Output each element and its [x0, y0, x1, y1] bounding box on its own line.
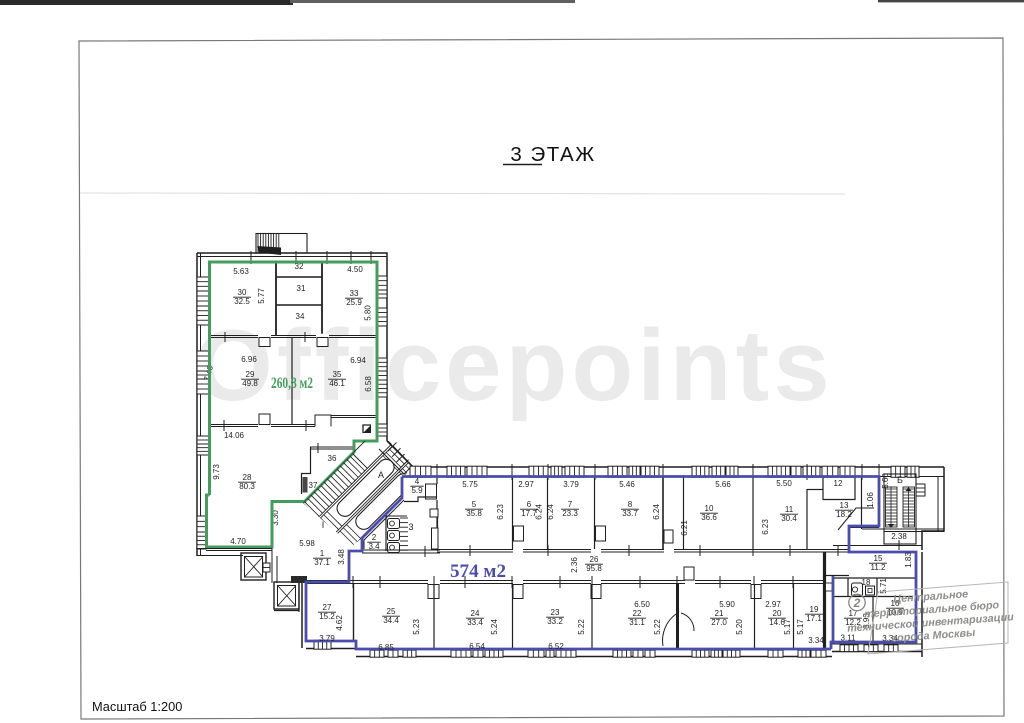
- svg-text:5: 5: [472, 500, 477, 509]
- svg-text:3.79: 3.79: [319, 634, 335, 643]
- svg-text:18: 18: [862, 578, 871, 587]
- svg-text:19: 19: [810, 605, 819, 614]
- svg-text:8: 8: [628, 500, 633, 509]
- svg-text:18.2: 18.2: [836, 510, 852, 519]
- svg-text:15: 15: [874, 554, 883, 563]
- svg-text:32.5: 32.5: [234, 297, 250, 306]
- svg-text:3.11: 3.11: [841, 634, 857, 643]
- svg-text:3.48: 3.48: [337, 549, 346, 565]
- svg-text:1.83: 1.83: [904, 552, 913, 568]
- svg-text:4.62: 4.62: [335, 615, 344, 631]
- svg-text:24: 24: [471, 609, 480, 618]
- svg-text:80.3: 80.3: [239, 482, 255, 491]
- svg-text:15.2: 15.2: [319, 612, 335, 621]
- svg-text:23.3: 23.3: [562, 509, 578, 518]
- svg-text:6.24: 6.24: [546, 504, 555, 520]
- svg-text:А: А: [378, 470, 384, 480]
- svg-text:33.4: 33.4: [467, 618, 483, 627]
- svg-text:10: 10: [705, 504, 714, 513]
- svg-text:5.80: 5.80: [364, 305, 373, 321]
- svg-text:7: 7: [568, 500, 573, 509]
- svg-text:6.54: 6.54: [469, 642, 485, 651]
- svg-text:5.24: 5.24: [490, 619, 499, 635]
- svg-text:25: 25: [387, 607, 396, 616]
- svg-text:6: 6: [527, 500, 532, 509]
- svg-text:2.36: 2.36: [570, 557, 579, 573]
- svg-text:3: 3: [408, 522, 413, 532]
- svg-text:27.0: 27.0: [711, 618, 727, 627]
- svg-text:2: 2: [853, 596, 861, 610]
- svg-text:Officepoints: Officepoints: [194, 310, 834, 422]
- svg-text:2.38: 2.38: [891, 532, 907, 541]
- svg-text:6.58: 6.58: [364, 376, 373, 392]
- svg-text:11.2: 11.2: [871, 563, 887, 572]
- svg-text:6.23: 6.23: [761, 519, 770, 535]
- svg-text:4: 4: [415, 477, 420, 486]
- svg-text:33.2: 33.2: [547, 617, 563, 626]
- svg-text:3.34: 3.34: [808, 636, 824, 645]
- svg-text:260,8 м2: 260,8 м2: [271, 375, 313, 392]
- svg-text:4.50: 4.50: [347, 265, 363, 274]
- svg-text:6.85: 6.85: [378, 643, 394, 652]
- svg-text:2: 2: [372, 533, 377, 542]
- svg-text:Масштаб 1:200: Масштаб 1:200: [92, 699, 182, 714]
- svg-text:I: I: [322, 520, 325, 530]
- svg-text:30: 30: [238, 288, 247, 297]
- svg-text:5.9: 5.9: [411, 486, 423, 495]
- svg-text:5.22: 5.22: [577, 619, 586, 635]
- svg-text:27: 27: [323, 603, 332, 612]
- svg-text:6.50: 6.50: [634, 600, 650, 609]
- svg-text:1: 1: [320, 549, 325, 558]
- svg-text:21: 21: [715, 609, 724, 618]
- svg-text:3 ЭТАЖ: 3 ЭТАЖ: [510, 143, 595, 166]
- svg-text:5.75: 5.75: [462, 480, 478, 489]
- svg-text:5.50: 5.50: [776, 479, 792, 488]
- svg-text:30.4: 30.4: [781, 514, 797, 523]
- svg-text:35: 35: [333, 370, 342, 379]
- svg-text:4.70: 4.70: [230, 537, 246, 546]
- svg-text:6.24: 6.24: [535, 504, 544, 520]
- svg-text:5.63: 5.63: [233, 267, 249, 276]
- svg-text:1.06: 1.06: [866, 492, 875, 508]
- svg-text:35.8: 35.8: [466, 509, 482, 518]
- svg-text:12: 12: [834, 479, 843, 488]
- svg-text:34: 34: [296, 312, 305, 321]
- svg-text:20: 20: [773, 609, 782, 618]
- svg-text:5.60: 5.60: [881, 473, 890, 489]
- svg-text:11: 11: [785, 505, 794, 514]
- svg-text:5.23: 5.23: [412, 619, 421, 635]
- svg-text:2.97: 2.97: [765, 600, 781, 609]
- svg-text:5.77: 5.77: [257, 288, 266, 304]
- svg-text:6.23: 6.23: [496, 504, 505, 520]
- svg-text:26: 26: [590, 555, 599, 564]
- svg-text:5.66: 5.66: [715, 480, 731, 489]
- svg-text:17.1: 17.1: [806, 614, 822, 623]
- svg-text:3.4: 3.4: [368, 542, 380, 551]
- svg-text:22: 22: [633, 609, 642, 618]
- svg-text:5.17: 5.17: [796, 619, 805, 635]
- svg-text:29: 29: [246, 370, 255, 379]
- svg-text:14.06: 14.06: [224, 431, 245, 440]
- svg-text:33.7: 33.7: [622, 509, 638, 518]
- svg-text:33: 33: [350, 289, 359, 298]
- svg-text:25.9: 25.9: [346, 298, 362, 307]
- svg-text:6.52: 6.52: [548, 642, 564, 651]
- svg-text:9.73: 9.73: [212, 464, 221, 480]
- svg-text:5.46: 5.46: [619, 480, 635, 489]
- svg-text:95.8: 95.8: [586, 564, 602, 573]
- svg-text:31.1: 31.1: [629, 618, 645, 627]
- svg-text:13: 13: [840, 501, 849, 510]
- svg-text:23: 23: [551, 608, 560, 617]
- svg-text:49.8: 49.8: [242, 379, 258, 388]
- svg-text:28: 28: [243, 473, 252, 482]
- svg-text:574 м2: 574 м2: [450, 561, 506, 582]
- svg-text:5.90: 5.90: [719, 600, 735, 609]
- svg-text:2.97: 2.97: [518, 480, 534, 489]
- svg-text:5.20: 5.20: [735, 619, 744, 635]
- svg-text:37.1: 37.1: [314, 558, 330, 567]
- svg-text:3.79: 3.79: [563, 480, 579, 489]
- svg-text:5.98: 5.98: [299, 539, 315, 548]
- svg-text:6.96: 6.96: [241, 355, 257, 364]
- svg-text:Б: Б: [897, 475, 903, 485]
- svg-text:36: 36: [328, 454, 337, 463]
- svg-text:5.22: 5.22: [653, 619, 662, 635]
- svg-text:6.24: 6.24: [652, 504, 661, 520]
- svg-text:46.1: 46.1: [329, 379, 345, 388]
- svg-text:6.94: 6.94: [350, 356, 366, 365]
- svg-text:36.6: 36.6: [701, 513, 717, 522]
- svg-text:5.17: 5.17: [783, 619, 792, 635]
- svg-text:6.21: 6.21: [680, 520, 689, 536]
- svg-text:34.4: 34.4: [383, 616, 399, 625]
- svg-text:31: 31: [297, 284, 306, 293]
